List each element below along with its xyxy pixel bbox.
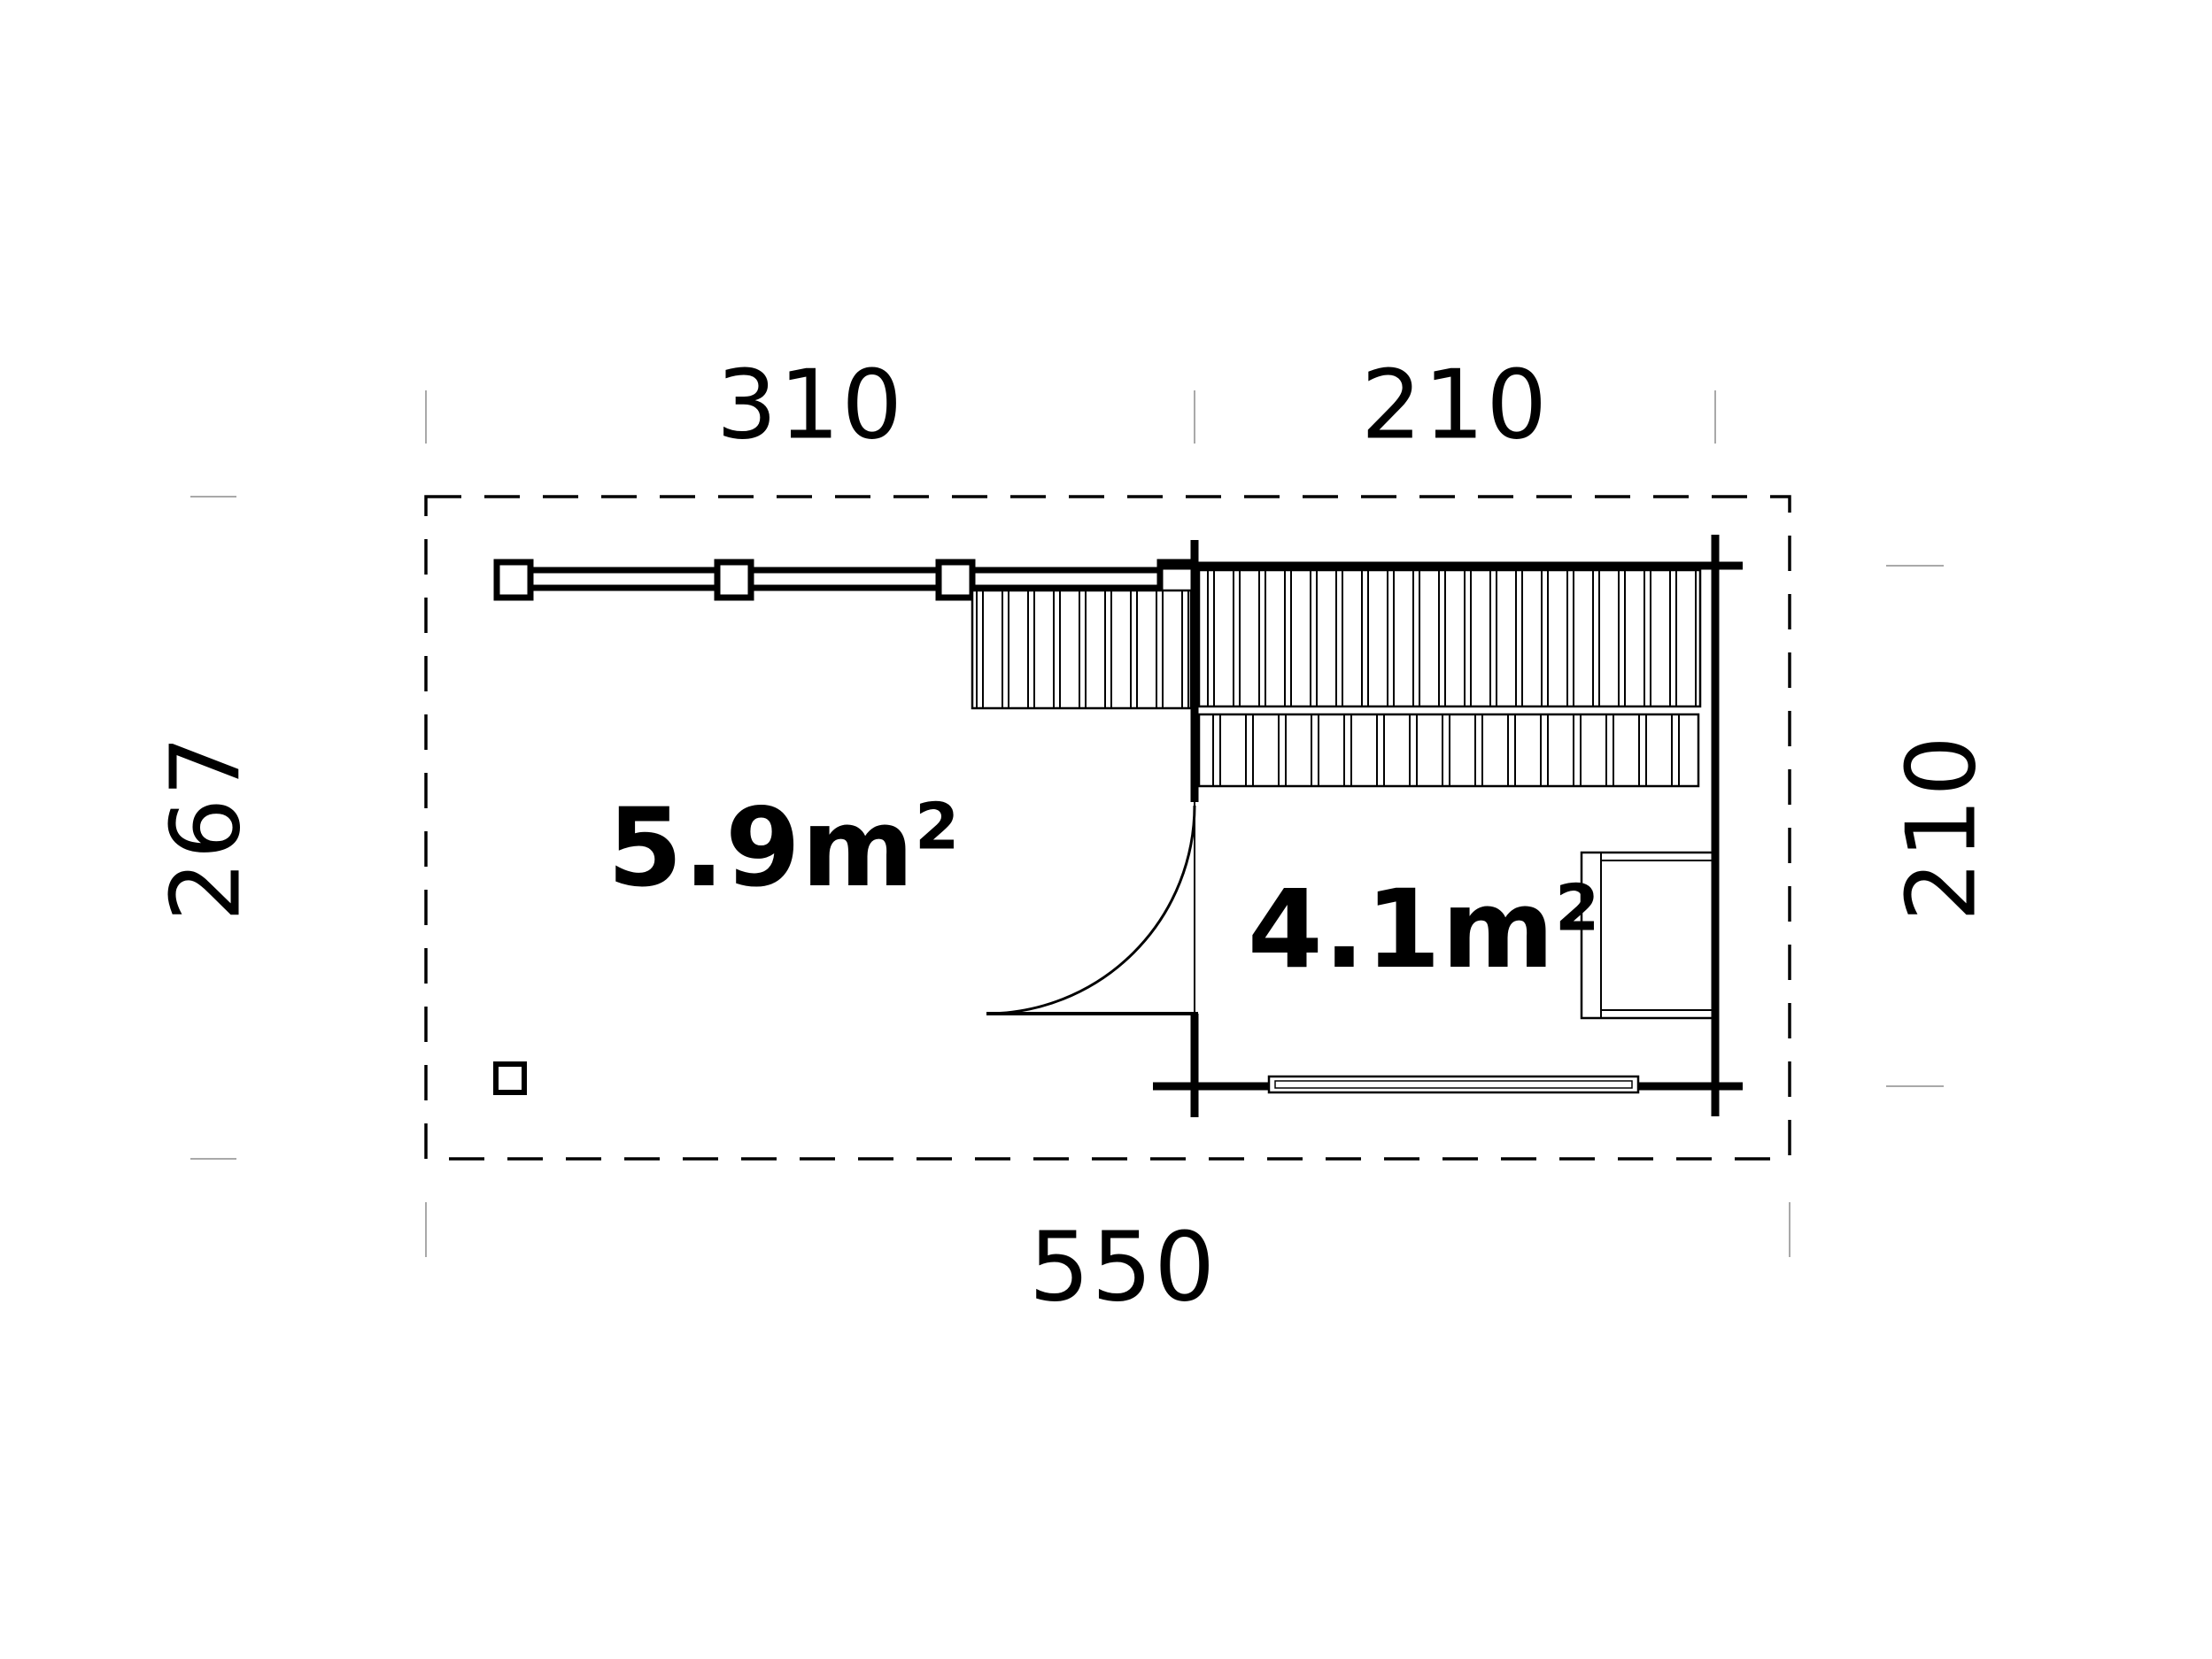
area-label-room: 4.1m2 <box>1248 867 1600 992</box>
dimension-room-depth: 210 <box>1887 734 1998 922</box>
dimension-overall-width: 550 <box>1029 1213 1217 1323</box>
railing-post-1 <box>497 562 530 598</box>
railing-post-3 <box>939 562 972 598</box>
floorplan-canvas: 310 210 267 210 550 5.9m2 4.1m2 <box>0 0 2212 1659</box>
terrace-bench <box>972 590 1191 708</box>
area-terrace-unit: m <box>801 785 915 911</box>
dimension-room-width: 210 <box>1361 351 1549 461</box>
window-inner-frame <box>1275 1081 1632 1088</box>
area-terrace-sup: 2 <box>915 789 960 863</box>
door-swing-arc <box>986 806 1195 1014</box>
dimension-terrace-width: 310 <box>716 351 904 461</box>
area-label-terrace: 5.9m2 <box>607 785 960 911</box>
door <box>986 802 1198 1014</box>
terrace-corner-post <box>496 1064 524 1092</box>
railing-post-2 <box>717 562 751 598</box>
dimension-overall-depth: 267 <box>151 734 262 922</box>
floorplan-drawing <box>0 0 2212 1659</box>
sauna-wall-bench <box>1582 853 1713 1018</box>
sauna-lower-bench <box>1199 714 1698 786</box>
area-room-sup: 2 <box>1555 870 1600 945</box>
window <box>1269 1076 1638 1092</box>
area-terrace-value: 5.9 <box>607 785 801 911</box>
sauna-upper-bench <box>1199 570 1700 706</box>
terrace-railing <box>497 570 1195 588</box>
area-room-value: 4.1 <box>1248 867 1442 992</box>
dimension-ticks <box>190 390 1944 1257</box>
area-room-unit: m <box>1442 867 1555 992</box>
